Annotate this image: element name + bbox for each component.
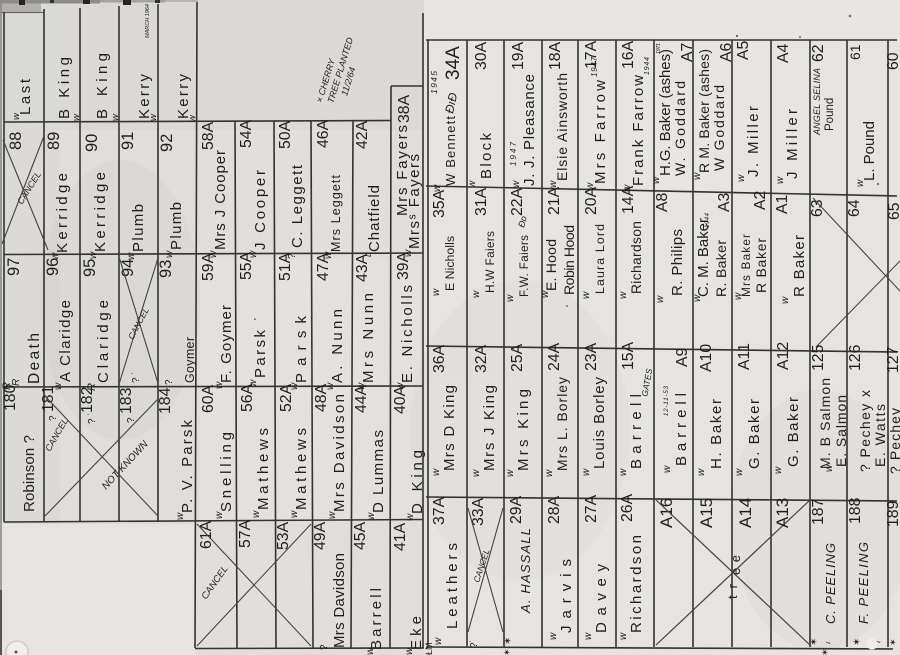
svg-text:?˙: ?˙	[469, 639, 480, 648]
svg-text:16A: 16A	[620, 40, 637, 69]
svg-text:61: 61	[847, 44, 863, 60]
svg-text:w: w	[511, 180, 522, 188]
svg-text:Richardson: Richardson	[629, 221, 644, 294]
svg-text:Louis Borley: Louis Borley	[591, 377, 608, 470]
svg-text:w: w	[581, 468, 592, 476]
svg-text:?: ?	[164, 379, 175, 385]
svg-text:Mrs Davidson: Mrs Davidson	[331, 553, 348, 648]
svg-text:38A: 38A	[396, 94, 413, 123]
svg-text:w: w	[471, 469, 482, 477]
svg-text:Last: Last	[17, 78, 34, 115]
svg-text:93: 93	[157, 260, 175, 278]
svg-text:A10: A10	[698, 344, 715, 372]
svg-text:44A: 44A	[353, 384, 370, 413]
svg-text:J. J. Pleasance: J. J. Pleasance	[521, 74, 538, 186]
svg-text:w: w	[824, 464, 835, 472]
svg-text:w: w	[148, 113, 159, 121]
svg-text:w: w	[187, 114, 198, 122]
svg-text:48A: 48A	[313, 383, 330, 412]
svg-text:24A: 24A	[546, 342, 563, 371]
svg-text:28A: 28A	[546, 495, 563, 524]
svg-text:R Baker: R Baker	[791, 235, 808, 297]
svg-text:?: ?	[48, 415, 59, 421]
svg-text:A14: A14	[736, 498, 755, 528]
svg-text:A16: A16	[657, 498, 676, 528]
svg-text:W Bennett: W Bennett	[443, 116, 458, 186]
svg-text:w: w	[736, 174, 747, 182]
svg-text:w: w	[175, 512, 186, 520]
svg-text:30A: 30A	[473, 41, 490, 70]
svg-text:R. Philips: R. Philips	[669, 229, 686, 296]
svg-text:35A: 35A	[431, 189, 448, 218]
svg-text:42A: 42A	[354, 120, 371, 149]
svg-text:F. Goymer: F. Goymer	[218, 305, 235, 383]
svg-text:A12: A12	[775, 342, 792, 370]
svg-text:96: 96	[44, 258, 62, 276]
svg-text:Mrs L. Borley: Mrs L. Borley	[554, 377, 570, 471]
svg-text:Parsk ˙: Parsk ˙	[252, 316, 269, 378]
svg-text:✶: ✶	[502, 648, 512, 655]
svg-text:20A: 20A	[583, 186, 600, 215]
svg-text:43A: 43A	[354, 253, 371, 282]
svg-text:34A: 34A	[443, 46, 464, 80]
svg-text:Death: Death	[26, 333, 43, 384]
svg-text:E. Hood: E. Hood	[543, 239, 559, 291]
svg-text:w: w	[505, 294, 516, 302]
svg-text:w: w	[662, 465, 673, 473]
svg-text:Mathews: Mathews	[255, 428, 272, 510]
svg-text:1945: 1945	[429, 71, 439, 94]
svg-text:w: w	[433, 637, 444, 645]
svg-text:A7: A7	[679, 43, 696, 62]
svg-text:29A: 29A	[508, 495, 525, 524]
svg-text:F. PEELING: F. PEELING	[856, 542, 871, 624]
svg-text:? ˙: ? ˙	[131, 371, 142, 383]
svg-text:w: w	[289, 510, 300, 518]
svg-text:32A: 32A	[473, 344, 490, 373]
svg-text:Eke: Eke	[408, 616, 425, 650]
svg-text:w: w	[692, 294, 703, 302]
svg-text:w: w	[733, 292, 744, 300]
svg-text:H. Baker: H. Baker	[708, 399, 725, 469]
svg-text:Mathews: Mathews	[293, 428, 310, 510]
svg-text:W Goddard: W Goddard	[711, 85, 727, 171]
svg-text:37A: 37A	[431, 496, 448, 525]
svg-text:Mrs D King: Mrs D King	[441, 385, 458, 471]
svg-text:51A: 51A	[277, 252, 294, 281]
svg-text:A8: A8	[654, 192, 671, 212]
svg-text:C. M. Baker: C. M. Baker	[695, 218, 712, 297]
svg-text:A. HASSALL: A. HASSALL	[518, 528, 533, 614]
svg-text:127: 127	[885, 347, 900, 373]
svg-text:w: w	[431, 468, 442, 476]
svg-text:Mrs Leggett: Mrs Leggett	[329, 174, 343, 252]
svg-text:22A: 22A	[509, 187, 526, 216]
svg-text:53A: 53A	[275, 521, 292, 550]
svg-text:w: w	[505, 469, 516, 477]
svg-text:1947: 1947	[590, 56, 599, 77]
svg-text:188: 188	[847, 497, 864, 524]
svg-text:59A: 59A	[200, 252, 217, 281]
svg-text:189: 189	[885, 500, 900, 527]
svg-text:w: w	[780, 296, 791, 304]
svg-text:Mrs Davidson: Mrs Davidson	[331, 394, 348, 512]
svg-text:E. Salmon: E. Salmon	[833, 395, 849, 467]
svg-text:65: 65	[886, 202, 900, 220]
svg-text:✶: ✶	[820, 648, 830, 655]
svg-text:w: w	[365, 647, 376, 655]
svg-text:M. B Salmon: M. B Salmon	[817, 378, 833, 469]
svg-text:w: w	[775, 176, 786, 184]
svg-text:? ˙: ? ˙	[87, 412, 98, 424]
svg-text:45A: 45A	[352, 521, 369, 550]
svg-text:w: w	[405, 513, 416, 521]
svg-text:A13: A13	[773, 498, 792, 528]
svg-text:36A: 36A	[431, 344, 448, 373]
svg-text:Chatfield: Chatfield	[366, 185, 383, 252]
svg-text:J. Miller: J. Miller	[745, 106, 762, 177]
svg-text:w: w	[544, 469, 555, 477]
svg-text:C. PEELING: C. PEELING	[823, 543, 838, 624]
svg-text:H.W Faiers: H.W Faiers	[483, 231, 497, 293]
svg-text:187: 187	[810, 499, 827, 525]
svg-text:27A: 27A	[583, 494, 600, 523]
svg-text:94: 94	[119, 259, 137, 277]
svg-text:58A: 58A	[200, 121, 217, 150]
svg-text:D Lummas: D Lummas	[370, 430, 387, 513]
svg-text:1944: 1944	[643, 57, 651, 75]
svg-text:26A: 26A	[619, 493, 636, 522]
svg-text:P. V. Parsk: P. V. Parsk	[179, 420, 196, 514]
svg-text:F.W. Faiers: F.W. Faiers	[518, 235, 531, 297]
svg-text:184: 184	[157, 387, 174, 414]
svg-text:40A: 40A	[392, 385, 409, 414]
svg-text:A5: A5	[735, 40, 752, 60]
svg-text:Pound: Pound	[824, 98, 836, 131]
svg-text:89: 89	[45, 132, 63, 150]
svg-text:Robinson ?: Robinson ?	[21, 435, 38, 512]
svg-text:ŁM: ŁM	[424, 642, 434, 655]
svg-text:w: w	[404, 647, 415, 655]
svg-text:181: 181	[40, 385, 57, 412]
svg-text:Block: Block	[478, 133, 495, 180]
svg-text:E Nicholls: E Nicholls	[443, 236, 457, 291]
svg-text:A9: A9	[674, 347, 691, 367]
svg-text:?: ?	[319, 644, 330, 650]
svg-text:90: 90	[83, 134, 101, 152]
svg-text:w: w	[11, 112, 22, 120]
svg-text:52A: 52A	[278, 383, 295, 412]
svg-text:54A: 54A	[238, 119, 255, 148]
svg-text:49A: 49A	[312, 521, 329, 550]
svg-text:R: R	[11, 379, 22, 386]
svg-text:w: w	[618, 632, 629, 640]
svg-text:Goymer: Goymer	[183, 337, 197, 383]
svg-text:A Claridge: A Claridge	[57, 300, 74, 382]
svg-text:23A: 23A	[583, 342, 600, 371]
svg-text:41A: 41A	[392, 522, 409, 551]
svg-text:w: w	[855, 179, 866, 187]
svg-text:55A: 55A	[238, 251, 255, 280]
svg-text:47A: 47A	[315, 252, 332, 281]
svg-text:Mrsˢ Fayers: Mrsˢ Fayers	[406, 154, 423, 249]
svg-text:w: w	[692, 172, 703, 180]
svg-text:18A: 18A	[547, 41, 564, 70]
svg-text:? Pechey: ? Pechey	[887, 408, 900, 474]
svg-text:✶: ✶	[888, 638, 898, 646]
svg-text:R M. Baker (ashes): R M. Baker (ashes)	[696, 49, 712, 173]
svg-text:50A: 50A	[277, 120, 294, 149]
svg-text:Mrs Baker: Mrs Baker	[739, 234, 753, 297]
svg-text:62: 62	[810, 44, 827, 62]
svg-text:57A: 57A	[237, 519, 254, 548]
svg-text:97: 97	[5, 258, 23, 276]
svg-text:25A: 25A	[509, 343, 526, 372]
svg-text:88: 88	[7, 132, 25, 150]
svg-text:183: 183	[118, 387, 135, 414]
svg-text:19A: 19A	[510, 41, 527, 70]
svg-text:w: w	[773, 466, 784, 474]
svg-text:33A: 33A	[470, 497, 487, 526]
svg-text:A3: A3	[716, 192, 733, 212]
svg-text:w: w	[88, 251, 99, 259]
svg-text:✶: ✶	[503, 637, 514, 645]
svg-text:w: w	[540, 290, 551, 298]
svg-text:w: w	[71, 113, 82, 121]
svg-text:w: w	[251, 510, 262, 518]
svg-text:w: w	[366, 512, 377, 520]
svg-text:w: w	[655, 295, 666, 303]
svg-text:w: w	[214, 511, 225, 519]
svg-text:L. Pound: L. Pound	[861, 121, 878, 181]
svg-text:w: w	[471, 290, 482, 298]
svg-text:126: 126	[847, 344, 864, 371]
svg-text:64: 64	[846, 199, 863, 217]
svg-text:A2: A2	[752, 191, 769, 210]
svg-text:w: w	[618, 291, 629, 299]
svg-text:12-11-53: 12-11-53	[663, 385, 670, 416]
svg-text:Laura Lord: Laura Lord	[593, 224, 607, 294]
svg-text:w: w	[734, 468, 745, 476]
svg-text:A15: A15	[697, 498, 716, 528]
svg-text:180: 180	[2, 384, 19, 411]
svg-text:14A: 14A	[620, 185, 637, 214]
svg-text:✶: ✶	[809, 638, 820, 646]
svg-text:182: 182	[79, 387, 96, 413]
svg-text:91: 91	[119, 132, 137, 150]
svg-text:Robin Hood: Robin Hood	[561, 225, 577, 295]
svg-text:39A: 39A	[395, 251, 412, 280]
svg-text:125: 125	[810, 344, 827, 371]
svg-text:w: w	[327, 511, 338, 519]
svg-text:w: w	[583, 632, 594, 640]
svg-text:W. Goddard: W. Goddard	[672, 81, 688, 176]
svg-text:w: w	[548, 632, 559, 640]
svg-text:15A: 15A	[620, 341, 637, 370]
svg-text:95: 95	[81, 259, 99, 277]
svg-text:60: 60	[885, 52, 900, 70]
svg-text:Elsie Ainsworth: Elsie Ainsworth	[554, 73, 570, 181]
svg-text:1947: 1947	[509, 141, 518, 166]
svg-text:B King: B King	[56, 57, 73, 119]
svg-text:C. Leggett: C. Leggett	[289, 164, 306, 248]
svg-text:Kerry: Kerry	[136, 74, 153, 120]
svg-text:w: w	[110, 113, 121, 121]
svg-text:w: w	[696, 468, 707, 476]
svg-text:56A: 56A	[239, 383, 256, 412]
svg-text:w: w	[651, 176, 662, 184]
svg-text:w: w	[618, 468, 629, 476]
svg-text:92: 92	[158, 134, 176, 152]
svg-text:1944: 1944	[705, 212, 711, 228]
svg-text:R Baker: R Baker	[753, 238, 769, 293]
svg-text:A1: A1	[774, 194, 791, 214]
svg-text:J Miller: J Miller	[784, 109, 801, 179]
svg-text:21A: 21A	[546, 186, 563, 215]
svg-text:? Pechey x: ? Pechey x	[857, 390, 873, 472]
svg-text:A4: A4	[775, 43, 792, 63]
svg-text:31A: 31A	[473, 187, 490, 216]
svg-text:w: w	[581, 291, 592, 299]
svg-text:Plumb: Plumb	[130, 204, 147, 252]
svg-text:Mrs J Cooper: Mrs J Cooper	[212, 150, 229, 250]
svg-text:w: w	[548, 180, 559, 188]
svg-text:✶: ✶	[852, 638, 863, 646]
svg-text:A6: A6	[718, 42, 735, 62]
svg-text:Kerry: Kerry	[175, 74, 192, 120]
svg-text:MARCH 1964: MARCH 1964	[145, 4, 151, 38]
svg-text:w: w	[467, 180, 478, 188]
svg-text:A11: A11	[736, 343, 753, 370]
svg-text:ANGEL SELINA: ANGEL SELINA	[812, 68, 822, 136]
svg-text:w: w	[164, 250, 175, 258]
svg-text:R. Baker: R. Baker	[713, 240, 729, 297]
svg-text:46A: 46A	[315, 119, 332, 148]
svg-text:w: w	[431, 288, 442, 296]
svg-text:63: 63	[809, 199, 826, 217]
svg-text:Plumb: Plumb	[168, 202, 185, 250]
svg-text:60A: 60A	[200, 384, 217, 413]
